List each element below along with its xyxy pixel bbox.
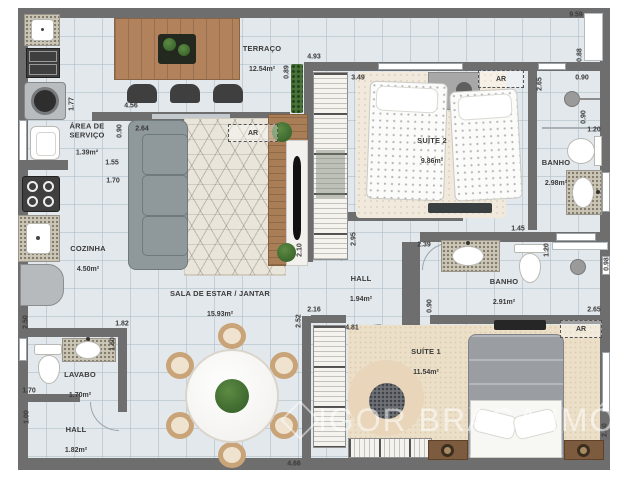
- wall-outer-bottom: [18, 458, 610, 470]
- window-servico: [19, 120, 27, 164]
- stove-burner: [27, 181, 38, 192]
- dim: 2.50: [23, 315, 30, 329]
- shower-head-icon: [564, 91, 580, 107]
- suite1-closet-bottom: [348, 438, 432, 458]
- banho2-toilet-tank: [514, 244, 546, 253]
- dim: 1.82: [115, 321, 129, 328]
- fridge: [20, 264, 64, 306]
- door-banho1-bottom: [556, 233, 596, 241]
- terrace-plant: [178, 44, 190, 56]
- sofa-seat: [142, 175, 188, 216]
- ac-label: AR: [496, 76, 506, 83]
- label-sala: SALA DE ESTAR / JANTAR15.93m²: [170, 282, 270, 322]
- dim: 1.70: [22, 388, 36, 395]
- wall-lavabo-right: [118, 328, 127, 412]
- tv-screen: [293, 156, 301, 240]
- dim: 2.16: [307, 307, 321, 314]
- dim: 2.52: [296, 314, 303, 328]
- shower-arm: [579, 98, 600, 100]
- dim: 4.81: [345, 325, 359, 332]
- dim: 4.66: [287, 461, 301, 468]
- lavabo-faucet: [86, 337, 90, 341]
- lavabo-toilet-tank: [34, 344, 62, 355]
- sofa-seat: [142, 216, 188, 256]
- dim: 1.55: [105, 160, 119, 167]
- dim: 2.65: [537, 77, 544, 91]
- banho2-shower-glass: [552, 242, 608, 250]
- laundry-tank-basin: [36, 132, 56, 156]
- wall-lavabo-top: [28, 328, 127, 337]
- stove-burner: [43, 181, 54, 192]
- dining-chair: [218, 442, 246, 468]
- suite1-lamp: [441, 444, 454, 457]
- terrace-plant: [163, 38, 176, 51]
- window-banho1: [602, 172, 610, 212]
- stove: [22, 176, 60, 212]
- banho1-sink: [572, 177, 594, 208]
- ac-unit-suite2: AR: [478, 70, 524, 88]
- stove-burner: [43, 196, 54, 207]
- terrace-chair: [170, 84, 200, 103]
- dim: 9.59: [569, 12, 583, 19]
- dim: 1.60: [110, 337, 117, 351]
- washing-machine-door: [31, 87, 59, 115]
- banho1-toilet-tank: [594, 136, 602, 166]
- terrace-chair: [127, 84, 157, 103]
- window-suite2: [378, 63, 463, 70]
- door-banho1: [538, 63, 566, 70]
- kitchen-faucet: [36, 236, 40, 240]
- sofa-seat: [142, 134, 188, 175]
- label-lavabo: LAVABO1.70m²: [64, 363, 96, 403]
- dim: 0.98: [604, 257, 611, 271]
- shower-head-icon: [570, 259, 586, 275]
- dim: 1.77: [69, 97, 76, 111]
- floor-plan: AR AR AR TERRAÇO12.54m² ÁREA DE SERVIÇO1…: [0, 0, 620, 479]
- dim: 0.88: [577, 48, 584, 62]
- suite2-pillow-2: [457, 93, 513, 121]
- ac-label: AR: [248, 130, 258, 137]
- laundry-sink-drain: [41, 28, 44, 31]
- lavabo-sink: [75, 341, 101, 359]
- banho1-faucet: [596, 190, 600, 194]
- dim: 0.90: [117, 124, 124, 138]
- laundry-cabinet-door: [29, 64, 57, 75]
- stove-burner: [27, 196, 38, 207]
- dim: 0.90: [427, 299, 434, 313]
- dim: 1.45: [511, 226, 525, 233]
- dim: 0.89: [284, 65, 291, 79]
- ac-unit-suite1: AR: [560, 320, 602, 338]
- laundry-cabinet-door: [29, 51, 57, 62]
- banho1-toilet: [567, 138, 595, 164]
- ac-unit-sala: AR: [228, 124, 278, 142]
- dim: 4.56: [124, 103, 138, 110]
- dim: 0.90: [575, 75, 589, 82]
- dim: 4.93: [307, 54, 321, 61]
- ac-label: AR: [576, 326, 586, 333]
- suite2-pillow-1: [375, 85, 438, 113]
- wall-suite1-stub: [311, 315, 346, 323]
- dim: 3.49: [351, 75, 365, 82]
- wall-servico-cozinha: [18, 160, 68, 170]
- suite1-lamp: [577, 444, 590, 457]
- table-centerpiece-plant: [215, 379, 249, 413]
- suite2-tv-dresser: [428, 203, 492, 213]
- terrace-chair: [213, 84, 243, 103]
- dim: 1.20: [544, 243, 551, 257]
- dim: 2.95: [351, 232, 358, 246]
- terrace-planter: [158, 34, 196, 64]
- dim: 0.90: [581, 110, 588, 124]
- dim: 1.70: [106, 178, 120, 185]
- wall-hall-vertical: [402, 242, 420, 325]
- dining-chair: [218, 323, 246, 349]
- dim: 1.20: [587, 127, 601, 134]
- hedge-planter: [291, 64, 303, 113]
- label-cozinha: COZINHA4.50m²: [70, 237, 106, 277]
- window-lavabo: [19, 338, 27, 361]
- banho2-sink: [452, 246, 484, 266]
- wall-outer-top: [18, 8, 610, 18]
- dim: 2.65: [587, 307, 601, 314]
- plant-pot: [277, 243, 296, 262]
- wall-suite1-left: [302, 316, 311, 458]
- label-terraco: TERRAÇO12.54m²: [243, 37, 281, 77]
- label-suite1: SUÍTE 111.54m²: [411, 340, 441, 380]
- label-hall-1: HALL1.82m²: [65, 418, 87, 458]
- watermark-text: IGOR BRAGA IMÓVEIS: [318, 402, 620, 439]
- closet-corridor-module: [316, 150, 345, 198]
- dim: 2.64: [135, 126, 149, 133]
- entry-door-panel: [584, 13, 603, 61]
- suite1-tv: [494, 320, 546, 330]
- dim: 2.39: [417, 242, 431, 249]
- dim: 1.00: [24, 410, 31, 424]
- banho2-faucet: [466, 241, 470, 245]
- label-area-servico: ÁREA DE SERVIÇO1.39m²: [58, 122, 116, 161]
- label-banho2: BANHO2.91m²: [490, 270, 519, 310]
- label-suite2: SUÍTE 29.86m²: [417, 129, 447, 169]
- dim: 2.10: [297, 243, 304, 257]
- label-banho1: BANHO2.98m²: [542, 151, 571, 191]
- label-hall-2: HALL1.94m²: [350, 267, 372, 307]
